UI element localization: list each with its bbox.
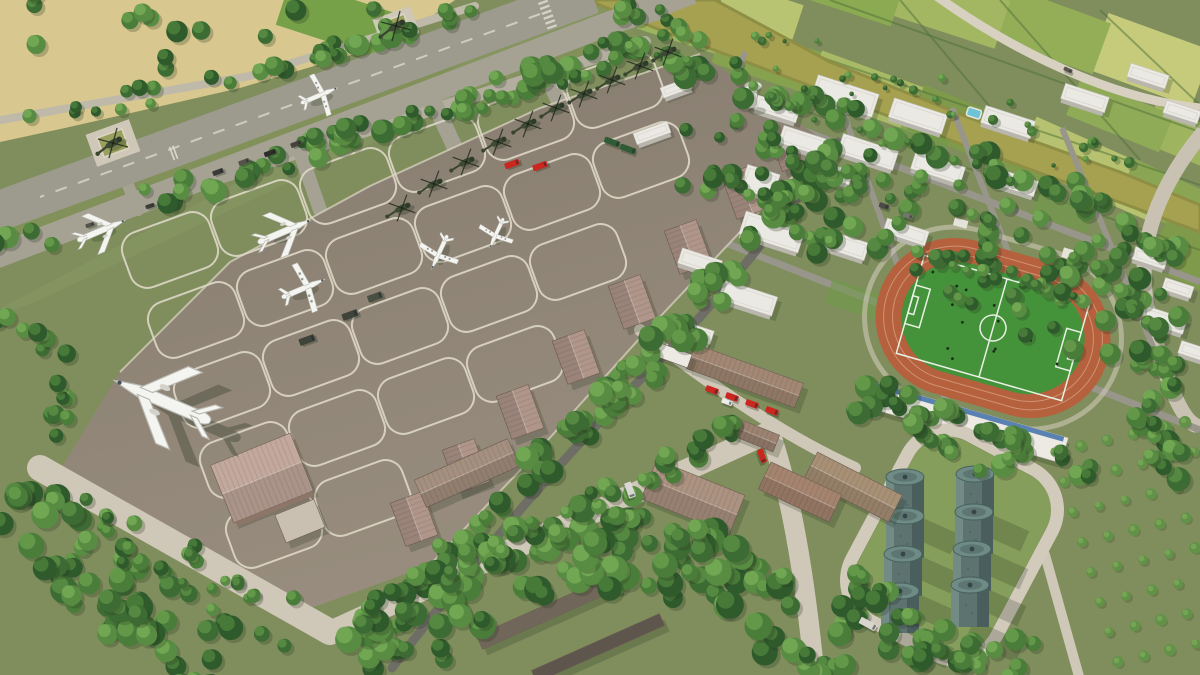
aerial-render: Aerial 3D architectural rendering of an … (0, 0, 1200, 675)
scene-svg (0, 0, 1200, 675)
